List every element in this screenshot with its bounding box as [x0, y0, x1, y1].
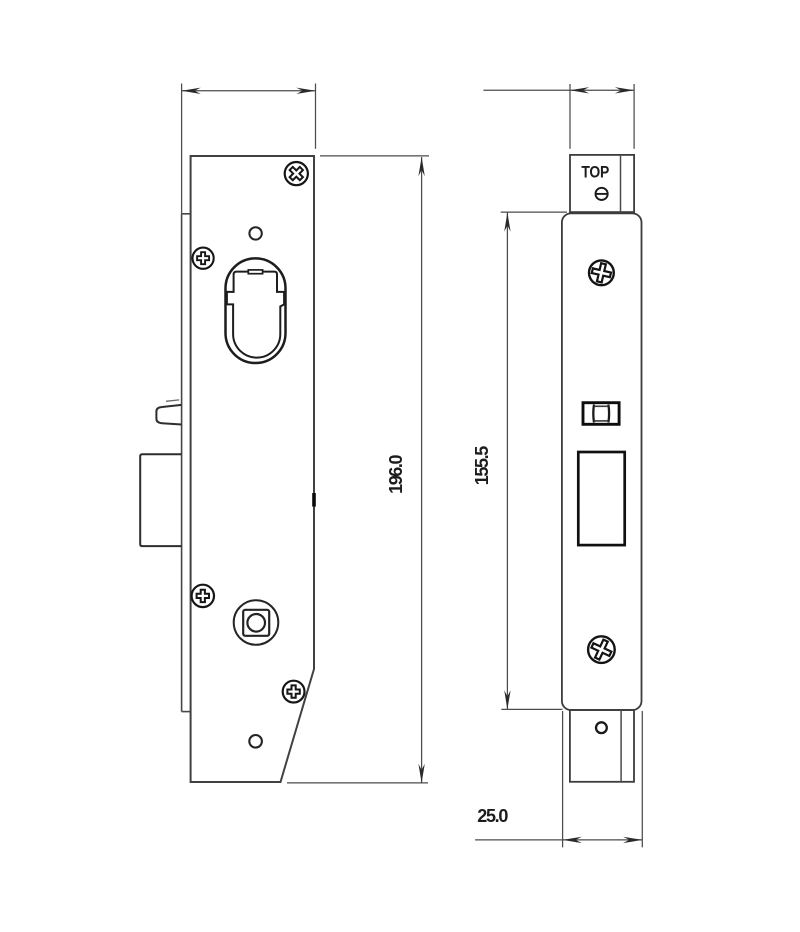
- svg-text:155.5: 155.5: [472, 446, 492, 485]
- svg-text:196.0: 196.0: [386, 454, 406, 493]
- svg-text:25.0: 25.0: [477, 806, 508, 826]
- svg-text:TOP: TOP: [581, 163, 609, 182]
